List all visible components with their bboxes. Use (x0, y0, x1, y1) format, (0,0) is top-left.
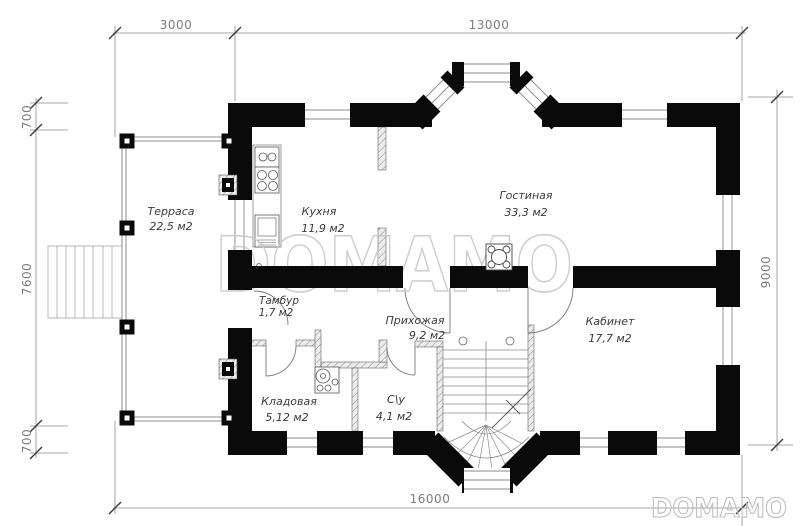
dim-9000: 9000 (759, 256, 773, 289)
interior-load-wall (240, 266, 716, 288)
terrace-outline (122, 137, 228, 421)
watermark-corner: DOMAMO (651, 493, 787, 524)
dim-700-bottom: 700 (20, 429, 34, 453)
stove-icon (255, 167, 279, 193)
room-label-storage: Кладовая (261, 395, 317, 408)
storage-door-arc (266, 346, 296, 376)
room-area-living: 33,3 м2 (504, 206, 547, 219)
dim-700-top: 700 (20, 105, 34, 129)
bay-window-top (414, 64, 560, 121)
wc-door-arc (387, 347, 415, 375)
room-label-terrace: Терраса (148, 205, 195, 218)
room-label-wc: С\у (387, 393, 405, 406)
sink-icon (255, 147, 279, 167)
dim-3000: 3000 (160, 18, 193, 32)
room-label-kitchen: Кухня (302, 205, 337, 218)
entry-steps (48, 246, 122, 318)
room-area-cabinet: 17,7 м2 (588, 332, 631, 345)
room-area-terrace: 22,5 м2 (149, 220, 192, 233)
dim-16000: 16000 (410, 492, 451, 506)
room-area-wc: 4,1 м2 (376, 410, 412, 423)
room-label-hallway: Прихожая (386, 314, 445, 327)
floor-plan-page: DOMAMO (0, 0, 800, 526)
room-label-living: Гостиная (499, 189, 552, 202)
room-area-kitchen: 11,9 м2 (301, 222, 344, 235)
bay-window-bottom (430, 441, 545, 489)
boiler-icon (315, 367, 339, 393)
room-area-storage: 5,12 м2 (265, 411, 308, 424)
room-label-vestibule: Тамбур (259, 295, 299, 307)
dimension-left (30, 97, 68, 459)
fireplace-icon (486, 244, 512, 270)
dim-13000: 13000 (469, 18, 510, 32)
staircase (443, 337, 531, 470)
room-area-vestibule: 1,7 м2 (259, 307, 294, 319)
floor-plan-drawing: DOMAMO (0, 0, 800, 526)
room-area-hallway: 9,2 м2 (409, 329, 445, 342)
dim-7600: 7600 (20, 263, 34, 296)
room-label-cabinet: Кабинет (586, 315, 635, 328)
